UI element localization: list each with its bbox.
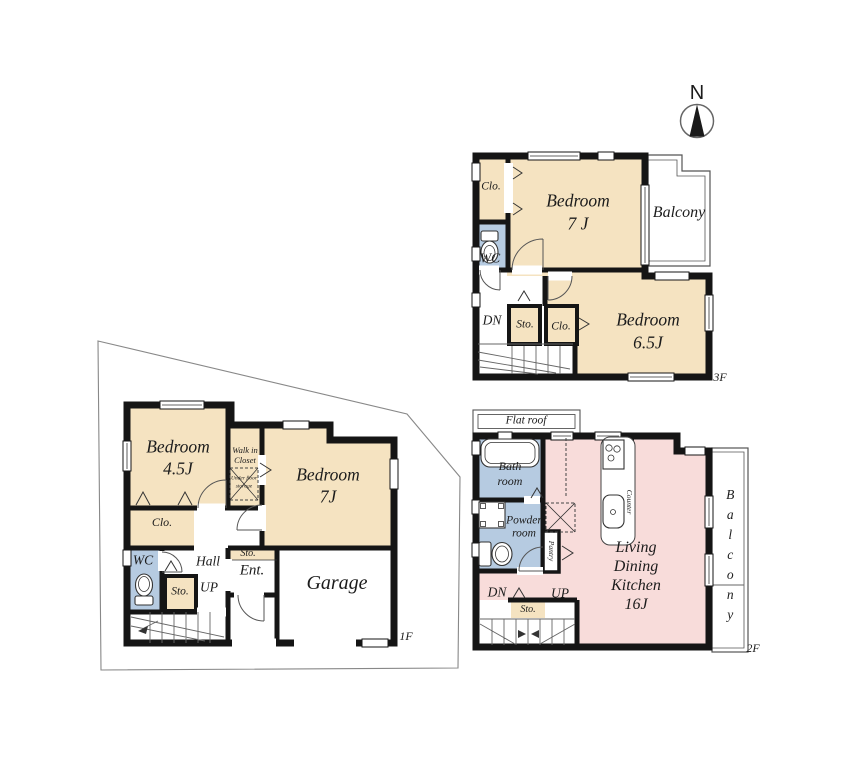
floor-plan-drawing	[0, 0, 845, 771]
f1-stairs-arrow	[138, 626, 148, 634]
f1-closet-label: Clo.	[152, 516, 172, 528]
f3-wc-label: WC	[480, 251, 500, 265]
f2-ldk-label-2: Dining	[614, 559, 658, 575]
f3-bedroom65-label: Bedroom	[616, 311, 680, 329]
f3-storage-label: Sto.	[516, 319, 534, 331]
f1-bedroom7-label: Bedroom	[296, 466, 360, 484]
f1-underfloor-label-2: storage	[236, 484, 253, 490]
f2-sink-icon	[603, 495, 624, 528]
f2-powder-label-2: room	[512, 528, 536, 540]
f1-bedroom45-label: Bedroom	[146, 438, 210, 456]
f2-pantry-label: Pantry	[547, 541, 555, 561]
f1-walk-in-closet-floor	[228, 425, 262, 508]
f1-storage-entrance-label: Sto.	[240, 549, 255, 559]
f2-ldk-size-label: 16J	[624, 597, 647, 613]
f1-underfloor-label-1: Under floor	[231, 476, 257, 482]
f3-floor-label: 3F	[713, 371, 726, 383]
f2-bath-label-1: Bath	[499, 460, 522, 472]
f1-floor-label: 1F	[399, 630, 412, 642]
f2-washing-machine-icon	[479, 502, 505, 528]
f2-ldk-label-3: Kitchen	[611, 578, 661, 594]
f2-floor-label: 2F	[746, 642, 759, 654]
f1-bedroom7-size-label: 7J	[320, 488, 337, 506]
f3-closet-bottom-label: Clo.	[551, 321, 571, 333]
f1-toilet-icon	[135, 574, 153, 605]
floor-plan-3f	[472, 152, 713, 381]
f2-counter-label: Counter	[625, 490, 633, 515]
f3-stairs	[478, 344, 573, 374]
f2-down-label: DN	[488, 585, 507, 599]
f1-walk-in-closet-label-2: Closet	[234, 456, 256, 465]
f1-storage-hall-label: Sto.	[171, 586, 189, 598]
f1-hall-label: Hall	[196, 554, 220, 568]
f2-balcony-label: Balcony	[723, 487, 737, 627]
f2-storage-label: Sto.	[520, 605, 535, 615]
f2-toilet-icon	[479, 542, 512, 566]
f1-bedroom45-size-label: 4.5J	[163, 460, 193, 478]
compass-north-label: N	[690, 83, 704, 103]
floor-plan-page: N Clo. Bedroom 7 J Balcony WC DN Sto. Cl…	[0, 0, 845, 771]
f1-wc-label: WC	[133, 553, 153, 567]
floor-plan-1f	[98, 341, 460, 670]
f1-entrance-label: Ent.	[240, 564, 265, 579]
f3-bedroom65-size-label: 6.5J	[633, 334, 663, 352]
f3-closet-top-label: Clo.	[481, 181, 501, 193]
f3-down-label: DN	[483, 313, 502, 327]
f2-ldk-label-1: Living	[616, 540, 657, 556]
f2-stove-icon	[603, 440, 624, 469]
compass-rose	[681, 105, 714, 138]
f1-stairs	[131, 612, 224, 643]
f2-flat-roof-label: Flat roof	[506, 415, 547, 427]
f2-bath-label-2: room	[498, 475, 523, 487]
f1-walk-in-closet-label-1: Walk in	[232, 446, 257, 455]
f1-up-label: UP	[200, 580, 218, 594]
f2-powder-label-1: Powder	[506, 515, 542, 527]
f3-bedroom7-size-label: 7 J	[568, 215, 589, 233]
f3-bedroom7-label: Bedroom	[546, 192, 610, 210]
f1-garage-label: Garage	[306, 573, 367, 593]
f2-up-label: UP	[551, 586, 569, 600]
f3-balcony-label: Balcony	[653, 205, 705, 221]
